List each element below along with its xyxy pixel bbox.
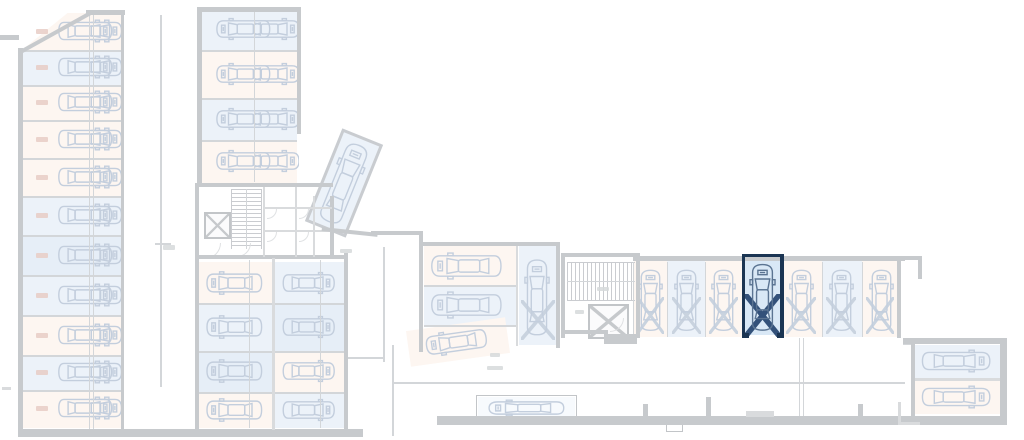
car-icon-clipped <box>91 14 122 49</box>
car-icon <box>91 243 122 268</box>
wall <box>636 253 640 338</box>
wall <box>195 255 337 259</box>
car-icon <box>637 267 664 333</box>
car-icon-clipped <box>91 51 122 84</box>
wall <box>371 231 423 235</box>
door-swing-arc <box>267 209 277 219</box>
space-label-tag <box>36 406 48 411</box>
car-icon <box>255 107 299 131</box>
wall <box>437 416 1007 425</box>
car-icon <box>485 399 567 417</box>
car-icon <box>91 283 122 308</box>
car-icon <box>91 127 122 152</box>
plan-line <box>22 85 122 87</box>
car-icon <box>255 62 299 86</box>
car-icon-clipped <box>91 316 122 354</box>
plan-line <box>424 285 516 287</box>
wall <box>604 334 637 344</box>
wall <box>898 422 920 425</box>
wall <box>263 187 265 257</box>
space-label-tag <box>36 333 48 338</box>
car-icon <box>281 398 337 422</box>
space-label-tag <box>163 245 175 250</box>
space-label-tag <box>490 353 500 357</box>
plan-line <box>392 382 905 384</box>
car-icon <box>868 267 895 333</box>
plan-line <box>22 50 122 52</box>
car-icon-clipped <box>91 356 122 389</box>
wall <box>419 242 423 352</box>
space-label-tag <box>340 249 352 253</box>
car-icon <box>91 90 122 115</box>
car-icon-clipped <box>91 159 122 195</box>
selected-space-border <box>780 254 784 338</box>
wall <box>0 35 19 40</box>
car-icon <box>919 385 993 410</box>
space-label-tag <box>36 370 48 375</box>
plan-line <box>705 262 706 337</box>
wall <box>197 7 202 185</box>
car-icon-clipped <box>91 86 122 119</box>
plan-line <box>633 262 634 337</box>
car-icon <box>255 17 299 41</box>
car-icon <box>428 290 504 320</box>
car-icon <box>710 267 737 333</box>
plan-line <box>667 262 668 337</box>
car-icon-clipped <box>91 276 122 314</box>
plan-line <box>202 50 297 52</box>
wall <box>706 397 711 417</box>
space-label-tag <box>36 137 48 142</box>
wall <box>911 344 915 419</box>
car-icon-clipped <box>91 121 122 157</box>
space-label-tag <box>36 65 48 70</box>
car-icon <box>204 270 264 296</box>
wall <box>335 255 348 259</box>
selected-space-border <box>777 333 784 338</box>
wall <box>2 387 11 390</box>
wall <box>898 402 901 424</box>
space-label-tag <box>36 253 48 258</box>
car-icon <box>828 267 855 333</box>
plan-line <box>202 140 297 142</box>
plan-line <box>246 189 247 249</box>
car-icon <box>91 396 122 421</box>
wall <box>344 253 348 433</box>
plan-line <box>567 281 635 282</box>
space-label-tag <box>36 175 48 180</box>
plan-line <box>22 275 122 277</box>
plan-line <box>202 98 297 100</box>
elevator <box>204 212 231 239</box>
car-icon-clipped <box>255 100 299 138</box>
car-icon <box>428 251 504 281</box>
plan-line <box>22 158 122 160</box>
space-label-tag <box>36 213 48 218</box>
wall <box>121 12 124 431</box>
door-swing-arc <box>267 232 277 242</box>
wall <box>419 242 560 246</box>
wall <box>858 404 863 417</box>
wall <box>897 256 901 338</box>
plan-line <box>799 338 800 418</box>
car-icon-clipped <box>91 197 122 234</box>
plan-line <box>392 345 394 436</box>
wall <box>1000 338 1007 425</box>
car-icon <box>91 19 122 44</box>
car-icon <box>255 149 299 173</box>
plan-line <box>22 355 122 357</box>
wall <box>915 378 1000 381</box>
car-icon-clipped <box>91 236 122 274</box>
car-icon <box>788 267 815 333</box>
wall <box>86 10 125 15</box>
wall <box>272 258 275 430</box>
plan-line <box>22 390 122 392</box>
wall <box>263 207 332 209</box>
selected-space-border <box>742 333 749 338</box>
car-icon-clipped <box>255 13 299 49</box>
wall <box>643 404 648 417</box>
car-icon <box>919 349 993 374</box>
plan-line <box>89 12 90 429</box>
plan-line <box>424 325 516 327</box>
selected-space-border <box>742 254 745 338</box>
car-icon <box>91 165 122 190</box>
space-label-tag <box>597 287 609 291</box>
plan-line <box>22 196 122 198</box>
wall <box>313 196 315 257</box>
space-label-tag <box>487 366 503 370</box>
plan-line <box>93 12 94 429</box>
wall <box>556 242 560 348</box>
car-icon-clipped <box>91 391 122 427</box>
wall <box>561 253 640 257</box>
door-swing-arc <box>299 232 309 242</box>
wall <box>516 246 518 346</box>
plan-line <box>383 247 385 362</box>
plan-line <box>347 357 385 359</box>
wall <box>903 338 1007 344</box>
car-icon <box>204 314 264 340</box>
space-label-tag <box>36 100 48 105</box>
plan-line <box>160 15 162 387</box>
wall <box>18 429 363 437</box>
car-icon <box>91 203 122 228</box>
wall <box>295 187 297 257</box>
car-icon <box>204 397 264 423</box>
wall <box>195 183 199 259</box>
wall <box>197 7 301 12</box>
car-icon <box>673 267 700 333</box>
plan-line <box>320 260 321 428</box>
car-icon <box>281 359 337 383</box>
selected-space-border <box>742 254 784 257</box>
car-icon <box>523 256 551 338</box>
space-label-tag <box>36 293 48 298</box>
wall <box>918 256 922 279</box>
car-icon-clipped <box>255 52 299 96</box>
space-label-tag <box>575 310 584 314</box>
car-icon <box>281 271 337 295</box>
car-icon <box>748 261 777 333</box>
plan-line <box>22 315 122 317</box>
plan-line <box>803 338 804 418</box>
plan-line <box>862 262 863 337</box>
car-icon <box>204 358 264 384</box>
car-icon <box>91 323 122 348</box>
wall <box>561 253 565 338</box>
floorplan-canvas <box>0 0 1024 440</box>
plan-line <box>249 260 250 428</box>
car-icon-clipped <box>255 142 299 181</box>
wall <box>746 411 774 417</box>
wall <box>561 330 608 334</box>
car-icon <box>91 360 122 385</box>
wall <box>195 255 199 433</box>
wall <box>297 7 301 134</box>
wall <box>18 48 23 435</box>
plan-line <box>22 235 122 237</box>
plan-line <box>254 9 255 182</box>
space-label-tag <box>36 29 48 34</box>
plan-line <box>22 120 122 122</box>
plan-line <box>822 262 823 337</box>
car-icon <box>281 315 337 339</box>
car-icon <box>91 55 122 80</box>
